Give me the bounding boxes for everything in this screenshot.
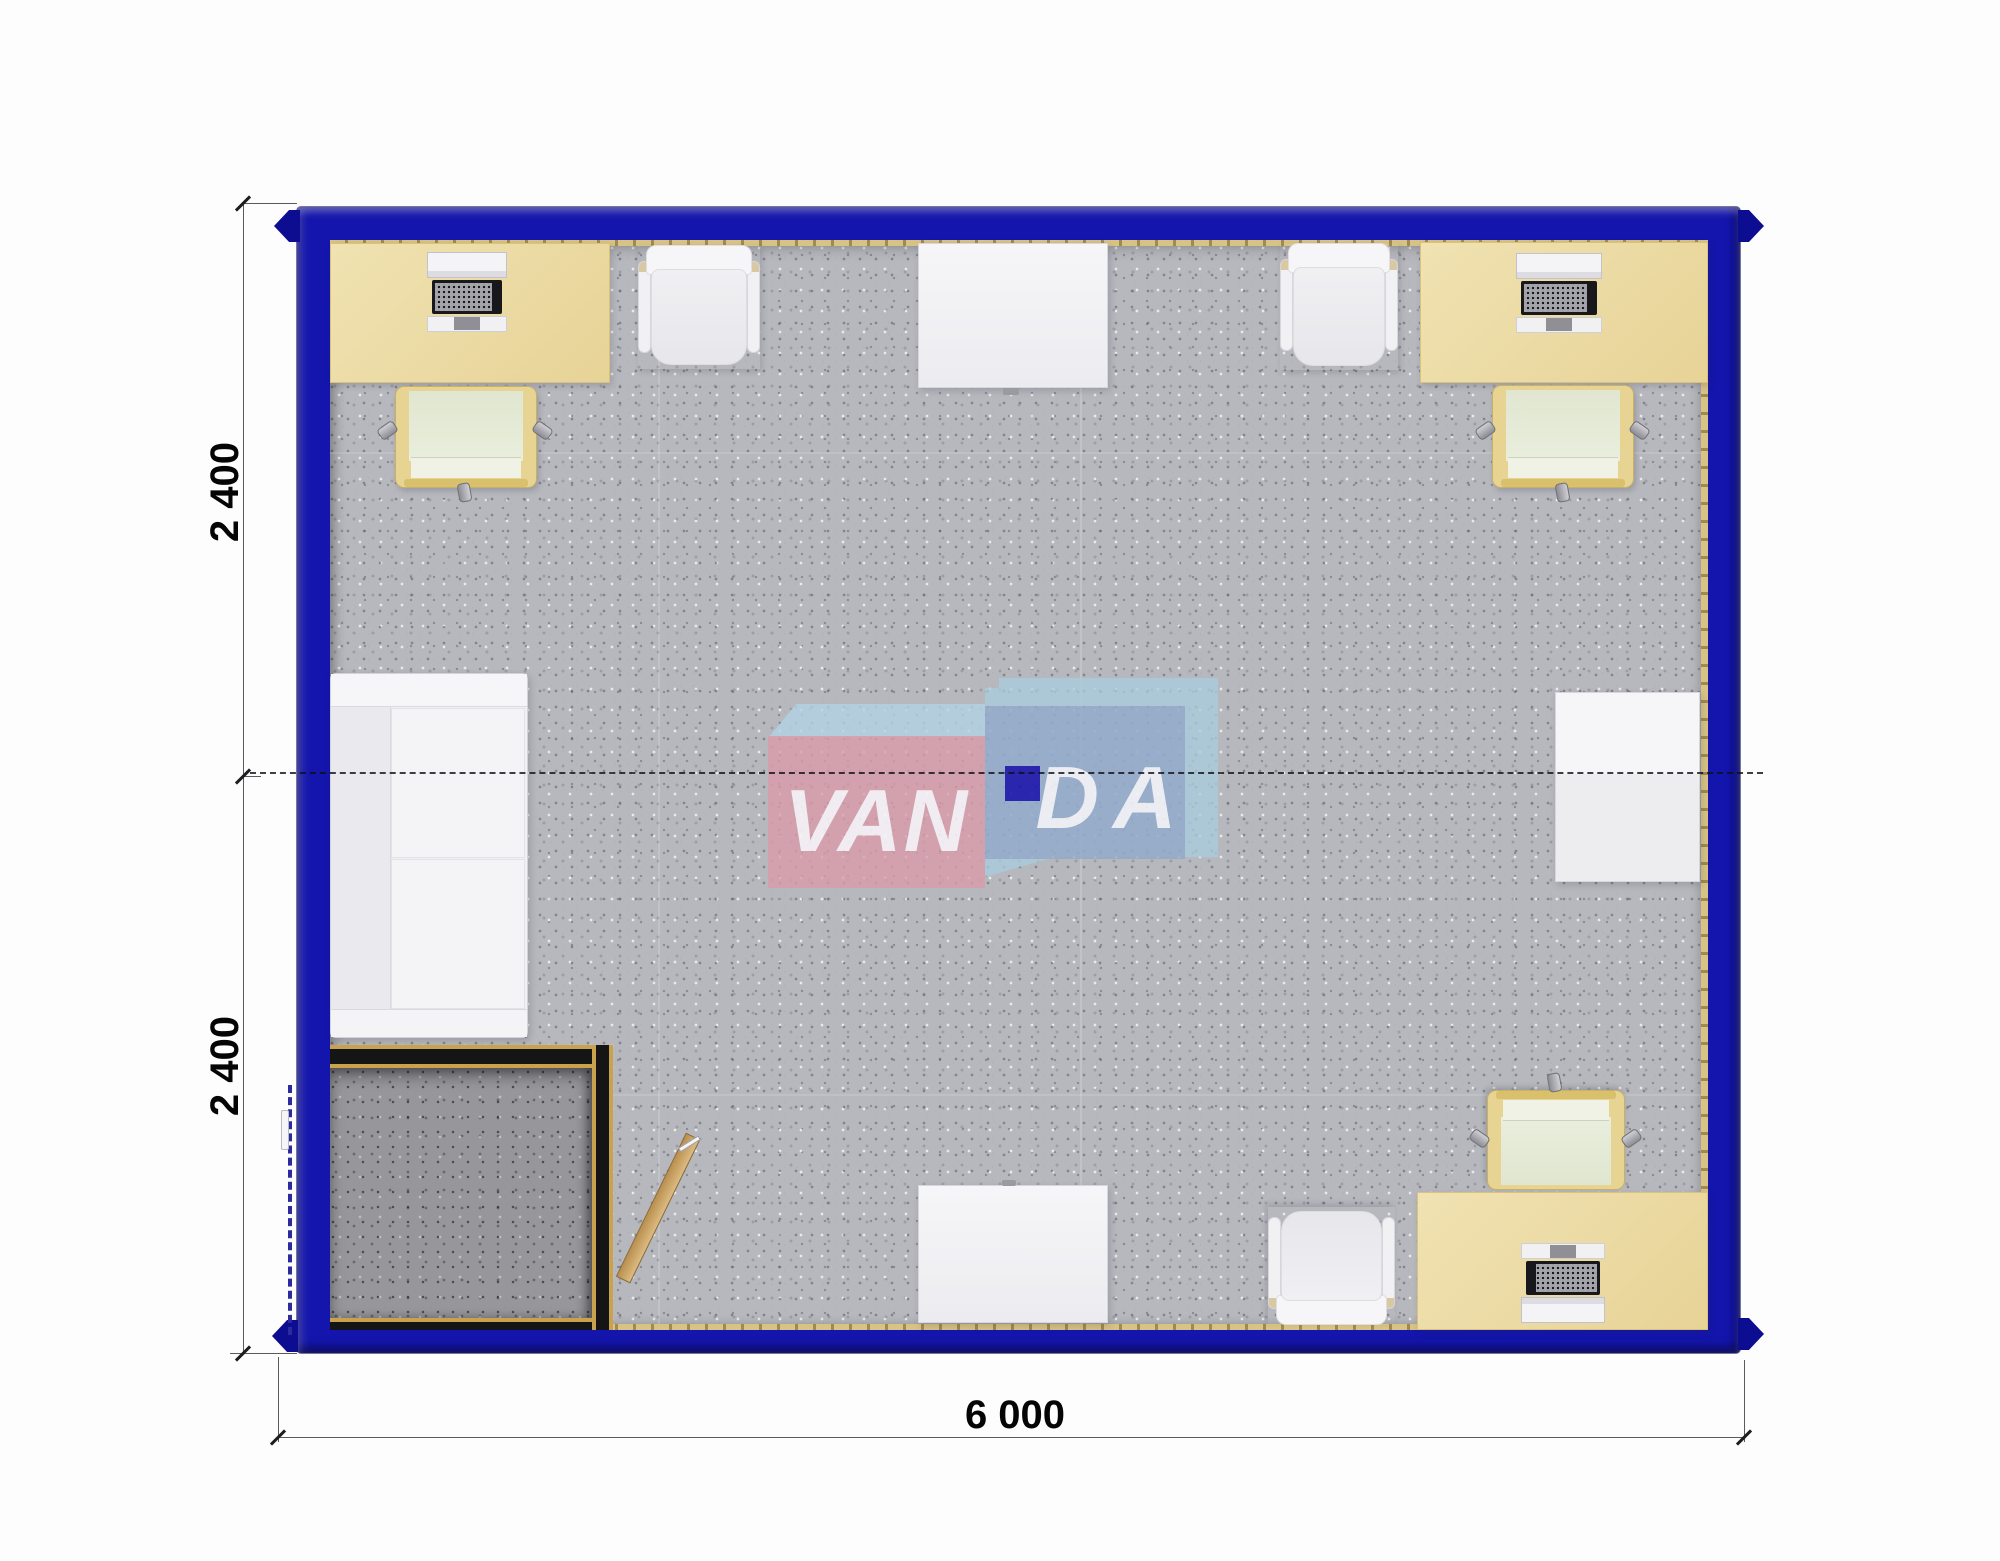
floor-panel-seam (658, 240, 660, 1330)
task-chair-top-right (1492, 385, 1634, 488)
sofa-armrest-bottom (331, 1009, 527, 1037)
computer-top-right (1516, 253, 1602, 333)
monitor (1521, 1297, 1605, 1323)
floor-plan-canvas: VAN DA (0, 0, 2000, 1561)
sofa-cushion (391, 859, 525, 1009)
logo-text-da: DA (1023, 750, 1203, 845)
keyboard (432, 280, 502, 314)
extension-line-mid-left (243, 776, 261, 777)
entry-vestibule-floor (330, 1068, 592, 1318)
guest-chair-top-1 (638, 245, 760, 369)
entry-wall-top (330, 1045, 613, 1068)
extension-line-bottom-corner-left (278, 1357, 279, 1442)
center-axis-dashed-line (250, 772, 1763, 774)
chair-frame-bar (1496, 1091, 1616, 1099)
vanda-watermark-logo: VAN DA (768, 678, 1218, 890)
corner-casting-bottom-left (272, 1320, 298, 1352)
guest-chair-bottom (1268, 1207, 1395, 1325)
monitor (1516, 253, 1602, 279)
corner-casting-bottom-right (1738, 1318, 1764, 1350)
table-top-center (918, 243, 1108, 388)
table-bottom-center (918, 1185, 1108, 1323)
keyboard (1521, 281, 1597, 315)
exterior-door-handle (281, 1110, 289, 1150)
dimension-label-left-top: 2 400 (203, 422, 243, 562)
table-right-wall (1555, 692, 1700, 882)
table-leg (1002, 1180, 1016, 1186)
sofa-cushion (391, 708, 525, 858)
sofa (330, 673, 528, 1038)
keyboard (1526, 1261, 1600, 1295)
chair-seat (411, 457, 521, 478)
table-leg (1003, 388, 1019, 395)
chair-backrest (409, 391, 523, 461)
entry-wall-right (592, 1045, 613, 1330)
extension-line-bottom-corner-right (1744, 1360, 1745, 1442)
sofa-backrest (331, 707, 391, 1009)
dimension-label-bottom: 6 000 (945, 1393, 1085, 1433)
monitor (427, 252, 507, 278)
logo-text-van: VAN (768, 773, 985, 868)
sofa-armrest-top (331, 674, 527, 707)
keyboard-keys (435, 283, 492, 311)
corner-casting-top-left (274, 210, 300, 242)
computer-top-left (427, 252, 507, 332)
task-chair-bottom-right (1487, 1090, 1625, 1190)
guest-chair-top-2 (1280, 243, 1398, 370)
chair-backrest (1506, 390, 1620, 461)
chair-seat (1503, 1100, 1609, 1121)
logo-pink-box-top-face (768, 704, 985, 738)
computer-vent (1550, 1245, 1576, 1258)
dimension-label-left-bottom: 2 400 (203, 996, 243, 1136)
keyboard-keys (1524, 284, 1587, 312)
corner-casting-top-right (1738, 210, 1764, 242)
chair-seat (1508, 457, 1618, 478)
chair-seat (651, 269, 747, 365)
chair-seat (1281, 1211, 1382, 1301)
chair-backrest (1501, 1117, 1611, 1185)
wall-trim-right (1701, 240, 1708, 1330)
computer-vent (1546, 318, 1572, 331)
computer-vent (454, 317, 480, 330)
chair-seat (1293, 267, 1385, 366)
entry-wall-bottom (330, 1318, 592, 1330)
extension-line-top-left (243, 203, 297, 204)
keyboard-keys (1536, 1264, 1597, 1292)
task-chair-top-left (395, 386, 537, 488)
computer-bottom-right (1521, 1243, 1605, 1323)
dimension-line-bottom (278, 1437, 1744, 1438)
